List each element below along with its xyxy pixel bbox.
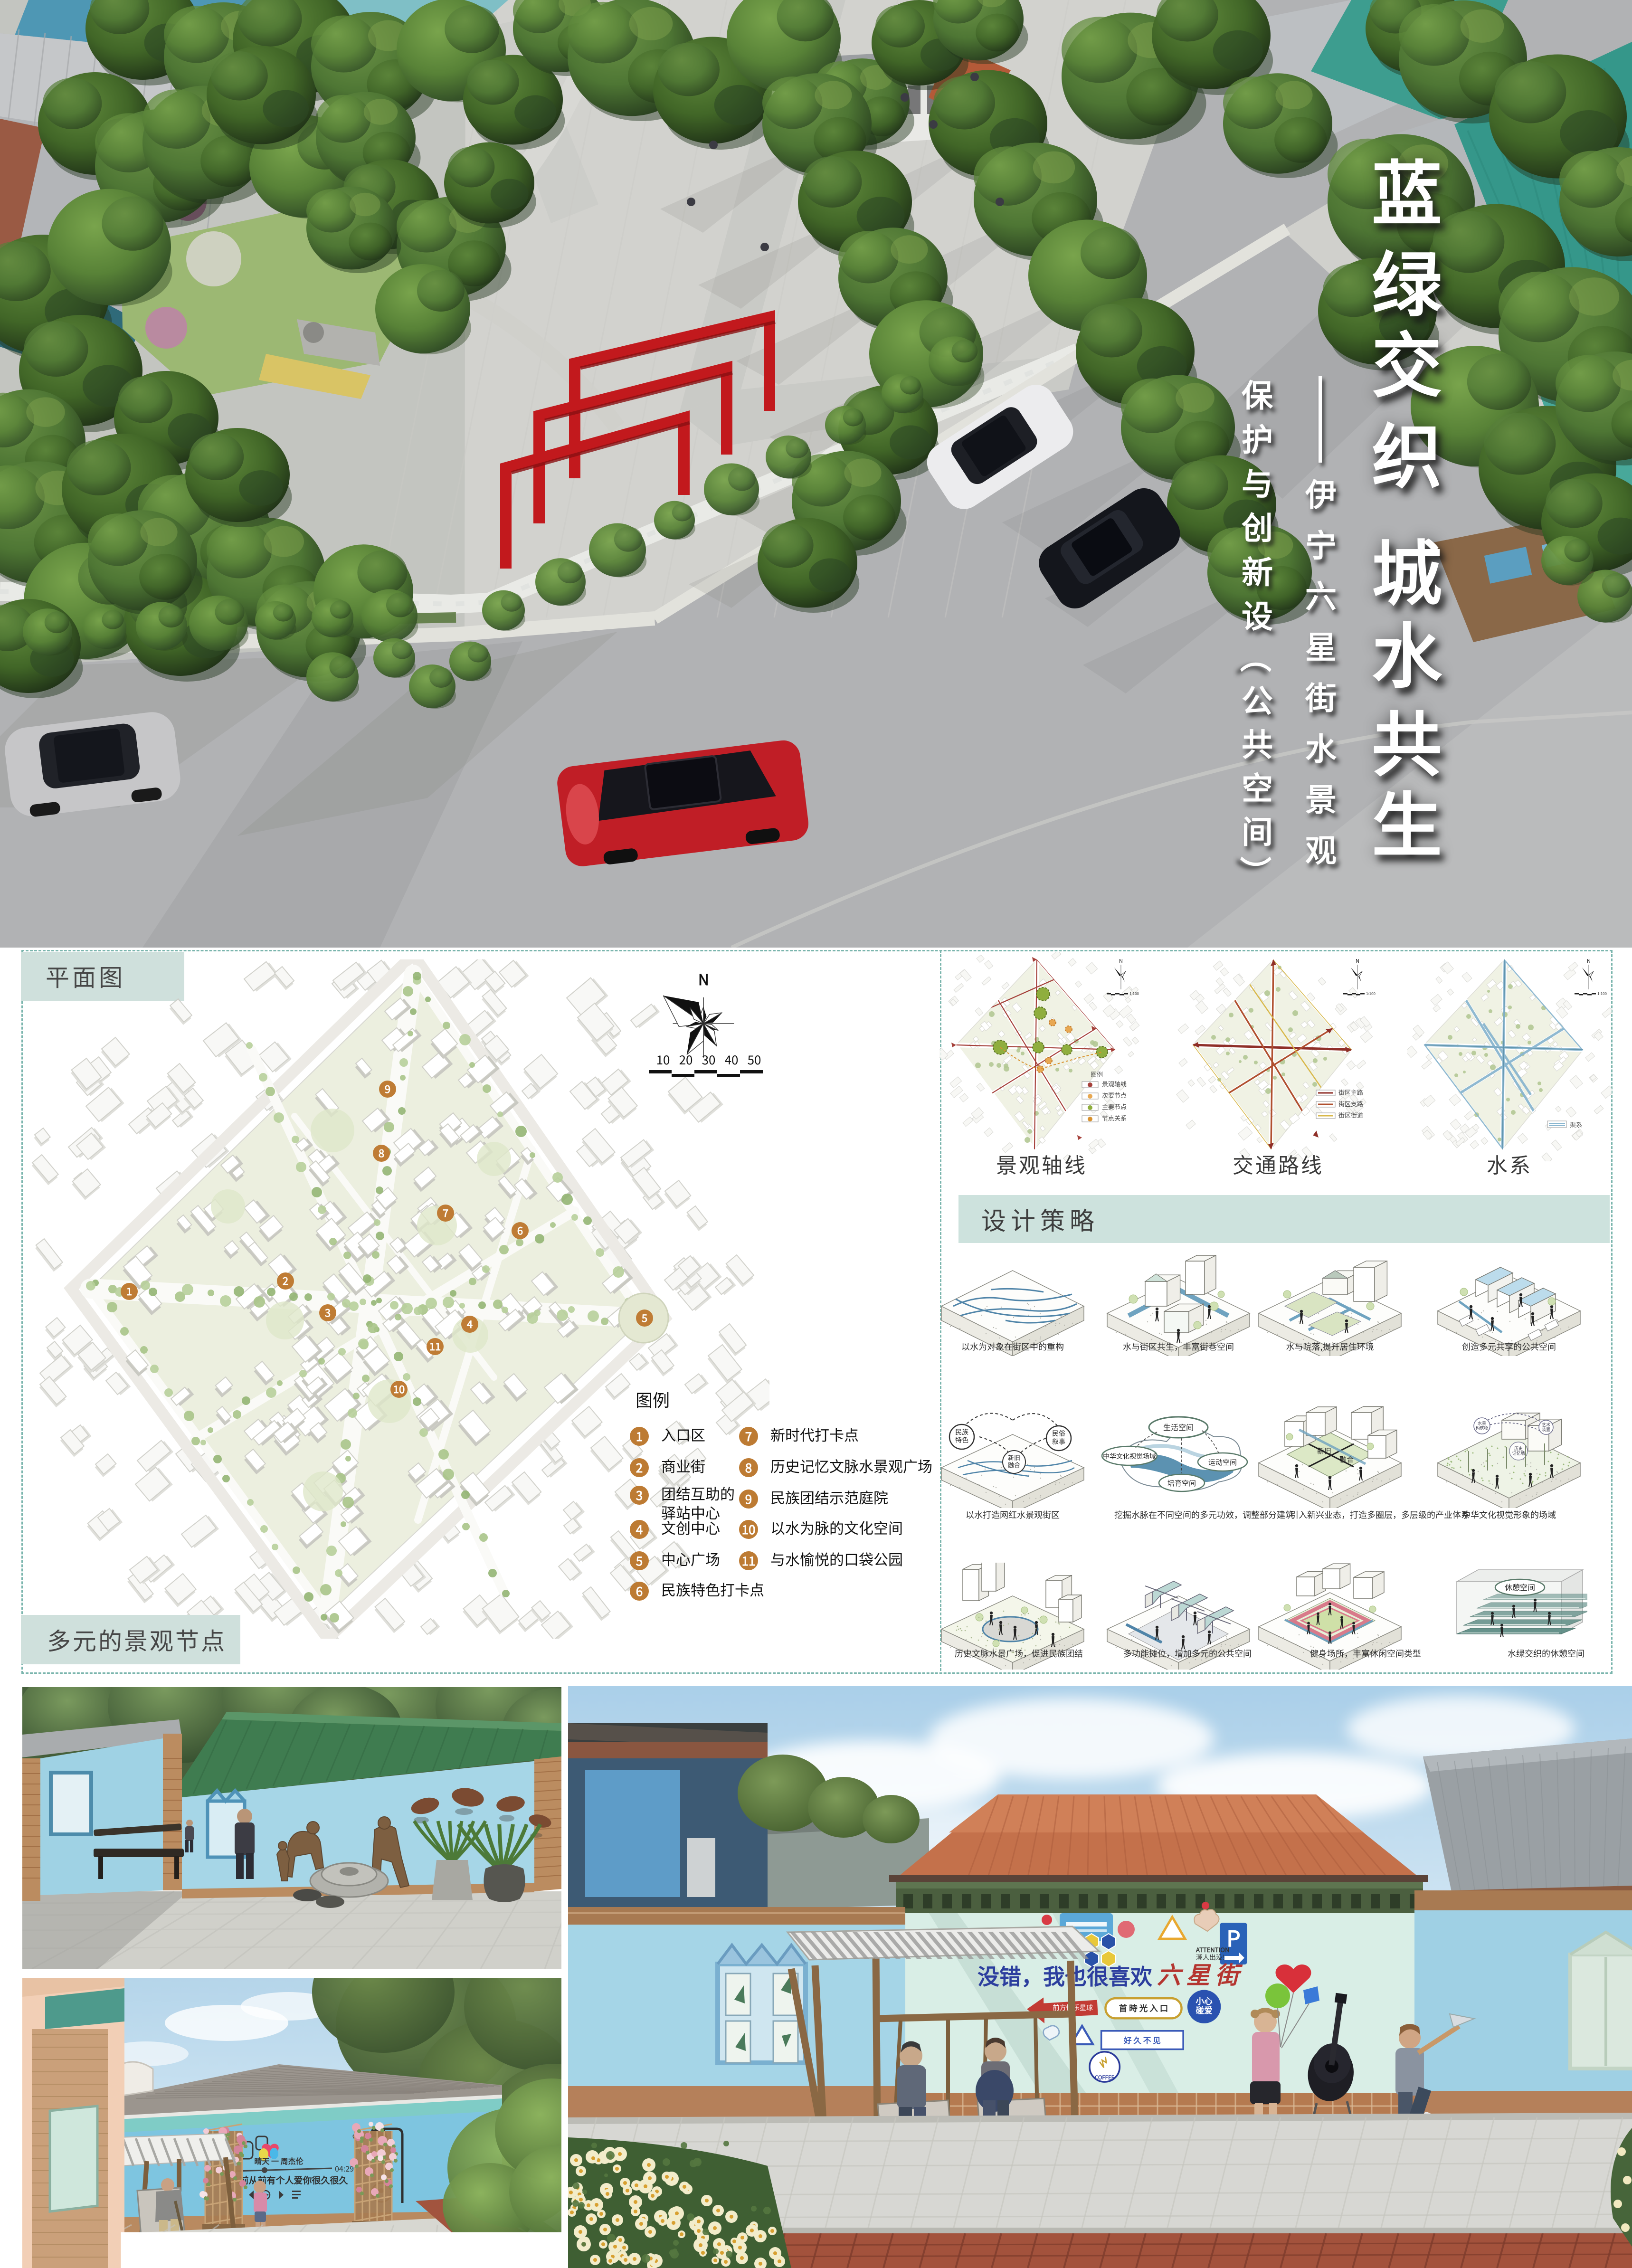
svg-text:运动空间: 运动空间	[1208, 1457, 1237, 1467]
svg-text:碰爱: 碰爱	[1196, 2004, 1213, 2016]
svg-text:融合: 融合	[1339, 1454, 1354, 1464]
svg-text:N: N	[1587, 957, 1591, 965]
svg-text:6: 6	[517, 1223, 523, 1238]
svg-text:中华文化视觉场域: 中华文化视觉场域	[1103, 1452, 1156, 1461]
svg-text:N: N	[1119, 957, 1123, 965]
svg-text:培育空间: 培育空间	[1167, 1478, 1196, 1488]
svg-text:叙事: 叙事	[1052, 1437, 1065, 1446]
svg-text:次要节点: 次要节点	[1102, 1091, 1127, 1100]
svg-text:景观轴线: 景观轴线	[1102, 1079, 1127, 1088]
svg-text:街区街道: 街区街道	[1338, 1110, 1363, 1120]
svg-text:1:100: 1:100	[1129, 991, 1139, 996]
svg-text:1: 1	[126, 1283, 132, 1299]
svg-text:30: 30	[702, 1051, 716, 1068]
svg-text:7: 7	[443, 1205, 448, 1220]
svg-text:记忆墙: 记忆墙	[1512, 1450, 1525, 1456]
svg-text:10: 10	[656, 1051, 670, 1068]
svg-text:从前从前有个人爱你很久很久: 从前从前有个人爱你很久很久	[230, 2173, 348, 2186]
svg-text:特色: 特色	[955, 1435, 968, 1445]
svg-text:节点关系: 节点关系	[1102, 1113, 1127, 1122]
svg-text:生活空间: 生活空间	[1163, 1421, 1194, 1433]
svg-text:1:100: 1:100	[1366, 991, 1376, 996]
svg-text:没错，我也很喜欢: 没错，我也很喜欢	[977, 1960, 1152, 1991]
svg-text:构筑物: 构筑物	[1475, 1425, 1488, 1431]
svg-text:5: 5	[642, 1310, 647, 1325]
svg-text:N: N	[698, 968, 709, 990]
svg-text:1:100: 1:100	[1597, 991, 1607, 996]
svg-text:4: 4	[467, 1316, 473, 1331]
svg-text:3: 3	[325, 1305, 331, 1320]
svg-text:主要节点: 主要节点	[1102, 1102, 1127, 1111]
svg-text:新旧: 新旧	[1317, 1446, 1331, 1456]
svg-text:20: 20	[679, 1051, 693, 1068]
svg-text:COFFEE: COFFEE	[1095, 2074, 1115, 2081]
svg-text:晴天 一 周杰伦: 晴天 一 周杰伦	[254, 2155, 304, 2166]
svg-text:街区支路: 街区支路	[1338, 1099, 1363, 1108]
svg-text:街区主路: 街区主路	[1338, 1088, 1363, 1097]
svg-text:图例: 图例	[1091, 1070, 1103, 1079]
svg-text:11: 11	[429, 1338, 441, 1354]
svg-text:2: 2	[283, 1273, 288, 1288]
svg-text:装置: 装置	[1542, 1426, 1550, 1433]
svg-text:渠系: 渠系	[1570, 1120, 1582, 1129]
svg-text:首 時 光 入 口: 首 時 光 入 口	[1119, 2002, 1168, 2014]
svg-text:8: 8	[379, 1145, 384, 1160]
svg-text:50: 50	[748, 1051, 761, 1068]
svg-text:40: 40	[725, 1051, 739, 1068]
svg-text:N: N	[1356, 957, 1359, 965]
svg-text:好 久 不 见: 好 久 不 见	[1123, 2034, 1161, 2046]
svg-text:10: 10	[393, 1381, 405, 1396]
svg-text:9: 9	[385, 1081, 390, 1096]
svg-text:六 星 街: 六 星 街	[1157, 1956, 1243, 1991]
svg-text:融合: 融合	[1008, 1460, 1020, 1469]
svg-text:休憩空间: 休憩空间	[1505, 1581, 1535, 1593]
